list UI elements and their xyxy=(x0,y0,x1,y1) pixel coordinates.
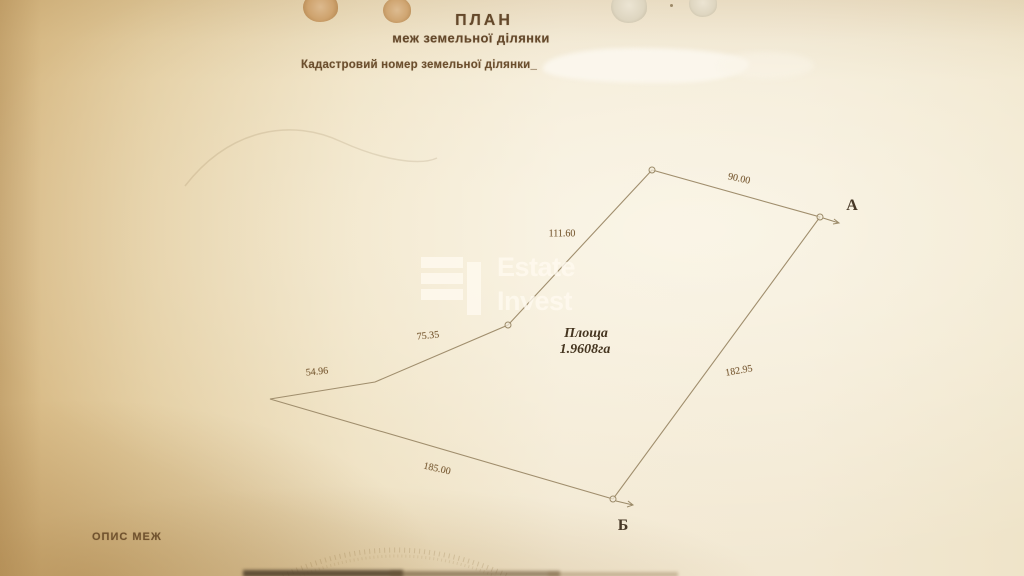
area-value: 1.9608га xyxy=(560,342,611,358)
estate-invest-logo-icon xyxy=(421,289,463,300)
scan-artifact-band xyxy=(390,571,560,576)
estate-invest-logo-icon xyxy=(421,257,463,268)
paper-crease xyxy=(185,130,437,186)
point-label-a: А xyxy=(846,197,858,215)
point-label-b: Б xyxy=(618,517,629,535)
vertex-tick-a xyxy=(823,218,839,224)
watermark-brand-line1: Estate xyxy=(497,254,575,281)
area-label: Площа xyxy=(564,326,608,342)
parcel-boundary xyxy=(270,170,820,499)
estate-invest-logo-icon xyxy=(467,262,481,315)
measurement-label-mid-left-edge: 75.35 xyxy=(416,329,440,342)
estate-invest-logo-icon xyxy=(421,273,463,284)
vertex-tick-b xyxy=(616,501,633,507)
section-title-opis-mezh: ОПИС МЕЖ xyxy=(92,531,162,543)
scan-artifact-band xyxy=(243,570,403,576)
vertex-marker xyxy=(649,167,655,173)
measurement-label-upper-left-edge: 111.60 xyxy=(549,229,576,240)
scanned-plan-page: ПЛАН меж земельної ділянки Кадастровий н… xyxy=(0,0,1024,576)
measurement-label-lower-left-edge: 54.96 xyxy=(305,365,329,378)
scan-artifact-band xyxy=(548,572,678,576)
vertex-marker xyxy=(817,214,823,220)
watermark-brand-line2: Invest xyxy=(497,288,572,315)
vertex-marker xyxy=(505,322,511,328)
vertex-marker xyxy=(610,496,616,502)
